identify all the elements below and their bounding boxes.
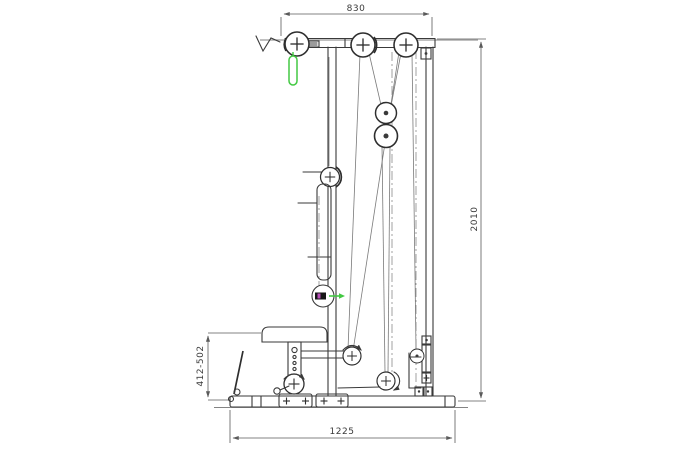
top-pulley-rear [394,33,418,57]
seat-pad [262,327,327,342]
magenta-pin-marker [318,294,321,299]
machine-drawing: 830 2010 412-502 1225 [0,0,681,450]
seat-roller [284,374,304,394]
technical-drawing-canvas: 830 2010 412-502 1225 [0,0,681,450]
dim-label-overall-height: 2010 [470,207,480,232]
bar-hook [256,36,280,51]
weight-carriage [409,336,431,388]
foot-lever [229,351,244,402]
carriage-roller [343,346,361,366]
green-arrow-head [339,293,345,299]
dim-label-seat-height: 412-502 [196,345,206,386]
top-pulley-middle [351,33,375,57]
dimension-base-length: 1225 [230,410,455,443]
dimension-top-width: 830 [281,4,432,36]
dim-label-base-length: 1225 [330,427,355,437]
cables [329,52,416,372]
top-pulley-front [285,32,309,56]
dim-label-top-width: 830 [347,4,366,14]
cable-hitch-detail [312,285,345,307]
dimension-seat-height: 412-502 [196,333,261,400]
double-pulley-block [375,103,398,148]
guide-channel [298,184,331,280]
seat-carriage [301,351,344,358]
seat-post [288,342,301,378]
linkage-bar [338,387,380,388]
handle-grip [289,52,297,85]
dimension-overall-height: 2010 [437,39,486,401]
